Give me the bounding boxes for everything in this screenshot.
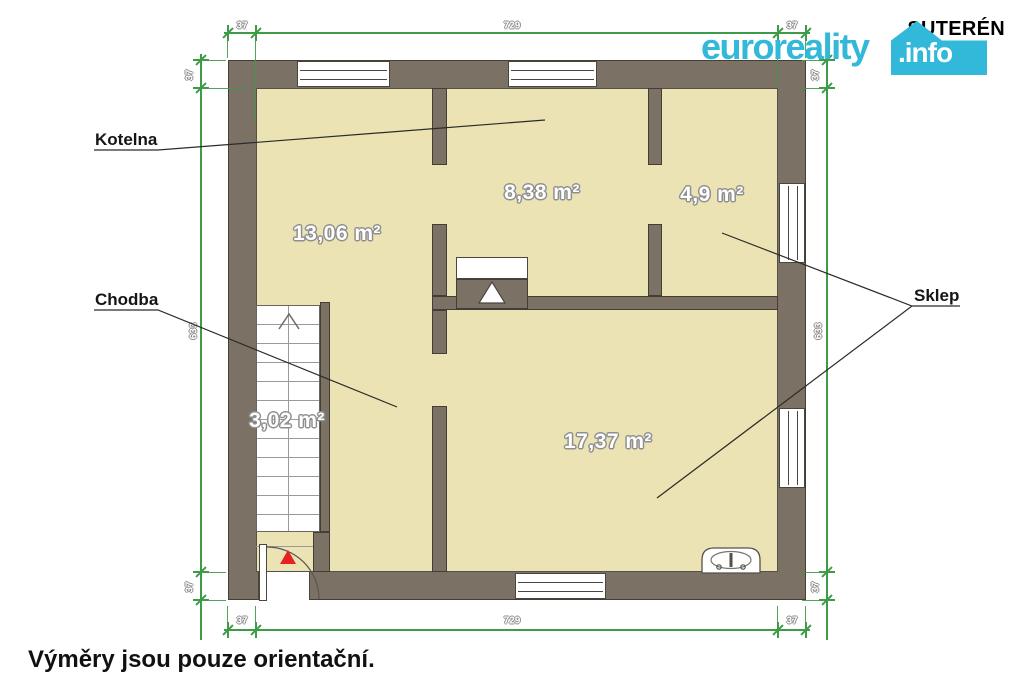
dim-extension <box>802 600 824 601</box>
dim-extension <box>206 88 248 89</box>
dim-extension <box>227 40 228 58</box>
window-bottom <box>515 573 606 599</box>
window-glass <box>511 70 594 80</box>
dim-value: 37 <box>811 581 822 592</box>
label-kotelna: Kotelna <box>95 130 157 150</box>
dim-extension <box>777 606 778 626</box>
dim-extension <box>255 40 256 122</box>
dim-value: 729 <box>504 616 521 627</box>
chimney-flue-box <box>456 257 528 279</box>
dim-value: 37 <box>236 616 247 627</box>
wall-segment <box>648 224 662 296</box>
dim-extension <box>206 572 226 573</box>
dim-extension <box>802 88 824 89</box>
dim-value: 633 <box>189 323 200 340</box>
dim-value: 729 <box>504 21 521 32</box>
window-top-left <box>297 61 390 87</box>
dimension-line-left <box>200 54 202 640</box>
dim-value: 37 <box>185 581 196 592</box>
room-area-label: 3,02 m² <box>249 409 325 433</box>
dimension-line-right <box>826 54 828 640</box>
room-area-label: 17,37 m² <box>564 430 652 454</box>
vestibule-wall <box>313 532 330 572</box>
window-glass <box>518 582 603 592</box>
dim-extension <box>206 600 226 601</box>
dimension-line-bottom <box>224 629 810 631</box>
window-right-lower <box>779 408 805 488</box>
label-sklep: Sklep <box>914 286 959 306</box>
window-top-middle <box>508 61 597 87</box>
dim-extension <box>805 606 806 626</box>
dim-extension <box>227 606 228 626</box>
window-glass <box>300 70 387 80</box>
wall-segment <box>432 88 447 165</box>
dim-value: 37 <box>185 69 196 80</box>
wall-segment <box>432 224 447 296</box>
interior-floor <box>256 88 778 572</box>
brand-logo-tld: .info <box>898 37 952 69</box>
brand-logo-text: euroreality <box>701 26 869 68</box>
label-chodba: Chodba <box>95 290 158 310</box>
window-glass <box>788 186 798 260</box>
window-glass <box>788 411 798 485</box>
dim-value: 37 <box>786 616 797 627</box>
dim-extension <box>802 572 824 573</box>
room-area-label: 13,06 m² <box>293 222 381 246</box>
floorplan-page: 37 729 37 37 729 37 37 633 37 37 633 37 … <box>0 0 1024 682</box>
window-right-upper <box>779 183 805 263</box>
dim-extension <box>255 606 256 626</box>
dim-value: 633 <box>814 323 825 340</box>
room-area-label: 4,9 m² <box>680 183 744 207</box>
dim-extension <box>206 60 226 61</box>
dim-value: 37 <box>236 21 247 32</box>
dim-value: 37 <box>811 69 822 80</box>
room-area-label: 8,38 m² <box>504 181 580 205</box>
disclaimer-text: Výměry jsou pouze orientační. <box>28 646 375 674</box>
wall-segment <box>648 88 662 165</box>
chimney-block <box>456 279 528 309</box>
wall-segment <box>432 406 447 572</box>
wall-segment <box>432 310 447 354</box>
door-leaf <box>259 544 267 601</box>
